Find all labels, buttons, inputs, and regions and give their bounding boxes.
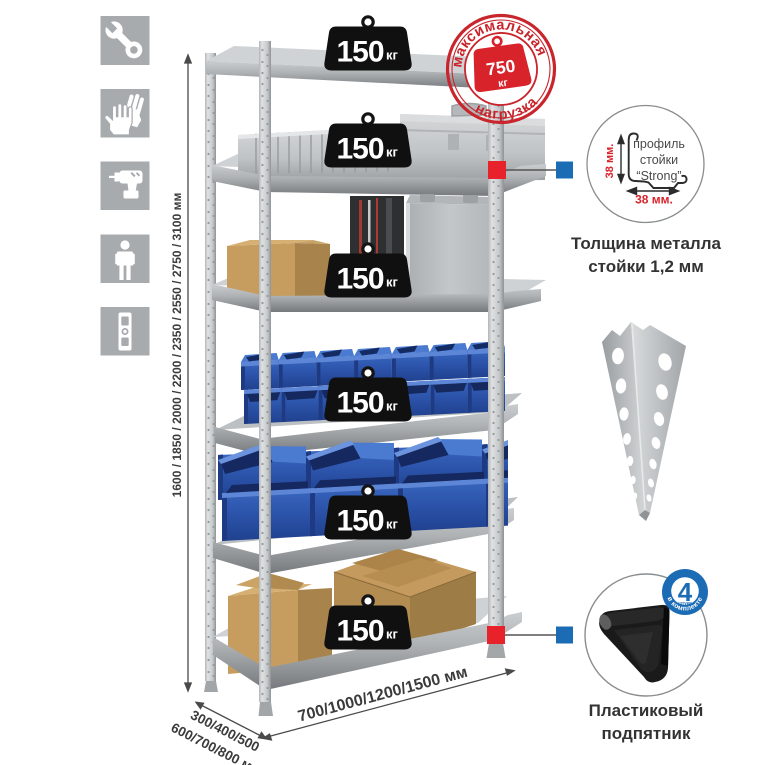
svg-text:кг: кг [386,48,399,63]
svg-text:стойки 1,2 мм: стойки 1,2 мм [588,257,704,276]
svg-text:150: 150 [336,505,383,538]
svg-text:Пластиковый: Пластиковый [589,701,704,720]
svg-text:150: 150 [336,133,383,166]
svg-text:150: 150 [336,263,383,296]
svg-text:150: 150 [336,36,383,69]
svg-text:“Strong”: “Strong” [636,169,681,183]
svg-text:кг: кг [386,627,399,642]
svg-text:подпятник: подпятник [602,724,691,743]
svg-text:кг: кг [386,275,399,290]
svg-text:150: 150 [336,615,383,648]
svg-text:кг: кг [386,145,399,160]
svg-text:750: 750 [485,56,517,80]
svg-text:кг: кг [386,399,399,414]
svg-text:стойки: стойки [640,153,678,167]
svg-text:38 мм.: 38 мм. [604,144,616,179]
svg-text:Толщина металла: Толщина металла [571,234,721,253]
svg-text:150: 150 [336,387,383,420]
svg-text:кг: кг [386,517,399,532]
svg-text:1600 / 1850 / 2000 / 2200 / 23: 1600 / 1850 / 2000 / 2200 / 2350 / 2550 … [170,193,184,498]
svg-text:профиль: профиль [633,137,685,151]
svg-text:38 мм.: 38 мм. [635,193,673,207]
